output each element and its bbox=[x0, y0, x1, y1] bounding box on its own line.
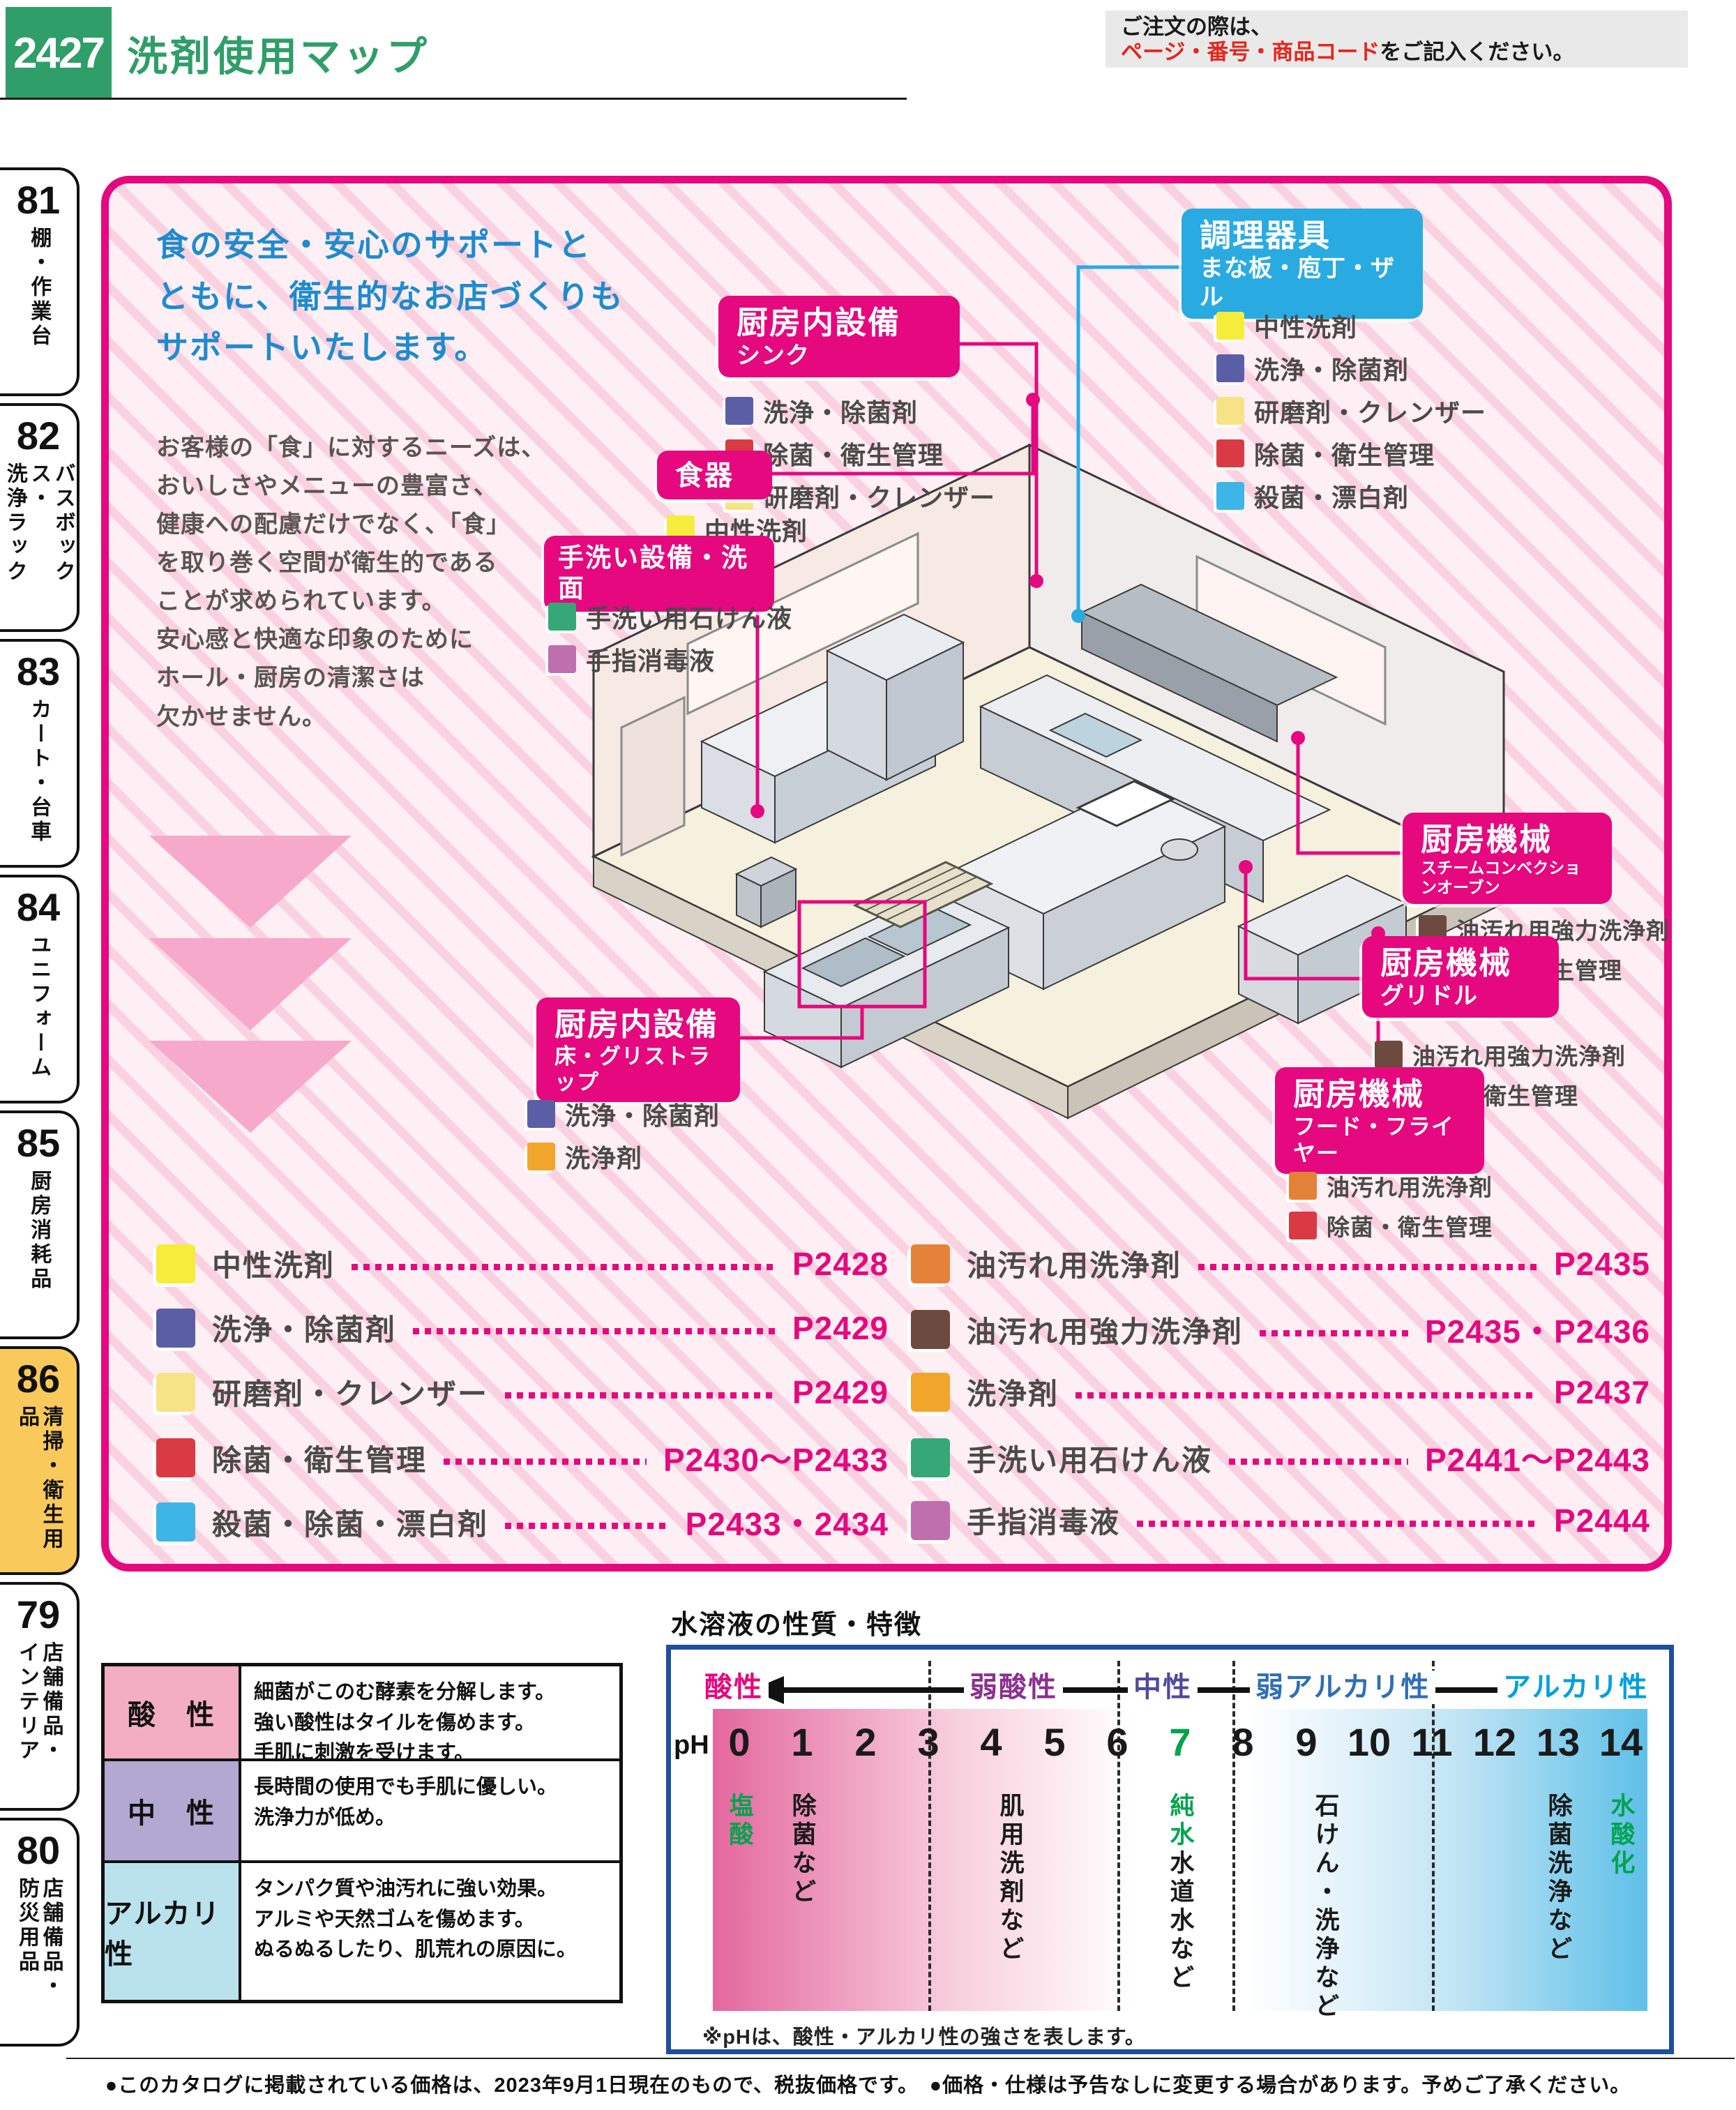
sidebar-tab-85[interactable]: 85厨房消耗品 bbox=[0, 1110, 80, 1339]
annotation-text: 石けん・洗浄など bbox=[1312, 1793, 1339, 2021]
page-number-badge: 2427 bbox=[6, 7, 112, 99]
chip-label: 手洗い用石けん液 bbox=[586, 598, 792, 635]
chip-label: 洗浄剤 bbox=[565, 1138, 642, 1175]
ph-axis-label: pH bbox=[674, 1731, 709, 1761]
ph-tick-3: 3 bbox=[904, 1719, 953, 1765]
legend-page-ref: P2429 bbox=[792, 1373, 889, 1411]
callout-tableware: 食器 bbox=[657, 451, 772, 499]
annotation-text: 塩酸 bbox=[726, 1793, 753, 1850]
footer-rule bbox=[66, 2058, 1735, 2059]
dotted-leader bbox=[352, 1264, 776, 1270]
footer-note: ●このカタログに掲載されている価格は、2023年9月1日現在のもので、税抜価格で… bbox=[0, 2069, 1736, 2098]
chip-label: 洗浄・除菌剤 bbox=[565, 1096, 720, 1132]
decorative-triangle bbox=[149, 938, 352, 1030]
color-chip bbox=[548, 603, 576, 631]
callout-subtitle: スチームコンベクションオーブン bbox=[1421, 859, 1594, 897]
tab-number: 84 bbox=[17, 884, 60, 930]
callout-cookware: 調理器具 まな板・庖丁・ザル bbox=[1182, 209, 1423, 319]
row-header: アルカリ性 bbox=[105, 1863, 241, 2000]
chip-label: 洗浄・除菌剤 bbox=[763, 393, 918, 429]
annotation-text: 純水 bbox=[1167, 1793, 1194, 1850]
ph-chart-title: 水溶液の性質・特徴 bbox=[671, 1603, 922, 1641]
ph-tick-8: 8 bbox=[1218, 1719, 1267, 1765]
chip-label: 研磨剤・クレンザー bbox=[1254, 393, 1486, 429]
ph-chart: 酸性 弱酸性 中性 弱アルカリ性 アルカリ性 pH 0 1 2 3 4 5 6 … bbox=[666, 1645, 1674, 2054]
legend-page-ref: P2435 bbox=[1554, 1245, 1650, 1283]
color-chip bbox=[725, 397, 753, 425]
scale-label-acid: 酸性 bbox=[699, 1671, 769, 1704]
legend-label: 研磨剤・クレンザー bbox=[212, 1371, 488, 1413]
order-note: ご注文の際は、 ページ・番号・商品コードをご記入ください。 bbox=[1105, 10, 1688, 68]
order-note-line1: ご注文の際は、 bbox=[1121, 15, 1688, 40]
callout-title: 厨房機械 bbox=[1293, 1076, 1466, 1113]
legend-swatch bbox=[156, 1309, 195, 1348]
tab-label: ユニフォーム bbox=[27, 934, 51, 1080]
ph-tick-2: 2 bbox=[841, 1719, 890, 1765]
legend-swatch bbox=[156, 1438, 195, 1477]
legend-swatch bbox=[156, 1502, 195, 1542]
chip-label: 研磨剤・クレンザー bbox=[763, 478, 995, 514]
table-row-acid: 酸 性 細菌がこのむ酵素を分解します。 強い酸性はタイルを傷めます。 手肌に刺激… bbox=[105, 1666, 619, 1761]
callout-hood-fryer-items: 油汚れ用洗浄剤 除菌・衛生管理 bbox=[1289, 1169, 1493, 1242]
ph-tick-6: 6 bbox=[1093, 1719, 1142, 1765]
color-chip bbox=[1216, 482, 1244, 510]
annotation-pure-water: 純水水道水など bbox=[1166, 1793, 1193, 1993]
ph-divider-dash bbox=[1117, 1661, 1120, 2011]
decorative-triangle bbox=[149, 836, 352, 928]
sidebar-tab-80[interactable]: 80店舗備品・ 防災用品 bbox=[0, 1818, 80, 2047]
callout-title: 手洗い設備・洗面 bbox=[558, 543, 760, 605]
legend-swatch bbox=[156, 1373, 195, 1412]
ph-tick-14: 14 bbox=[1597, 1719, 1645, 1765]
ph-footnote: ※pHは、酸性・アルカリ性の強さを表します。 bbox=[702, 2021, 1146, 2050]
chip-label: 油汚れ用強力洗浄剤 bbox=[1412, 1038, 1626, 1071]
legend-page-ref: P2433・2434 bbox=[686, 1499, 889, 1545]
callout-subtitle: 床・グリストラップ bbox=[554, 1043, 722, 1095]
chip-label: 除菌・衛生管理 bbox=[1254, 435, 1435, 472]
color-chip bbox=[548, 645, 576, 673]
legend-label: 洗浄剤 bbox=[967, 1371, 1059, 1413]
legend-row: 中性洗剤P2428 bbox=[156, 1242, 889, 1285]
color-chip bbox=[527, 1143, 555, 1170]
legend-row: 手洗い用石けん液P2441〜P2443 bbox=[911, 1435, 1650, 1481]
legend-label: 手洗い用石けん液 bbox=[967, 1437, 1212, 1479]
legend-page-ref: P2441〜P2443 bbox=[1425, 1435, 1650, 1481]
legend-page-ref: P2435・P2436 bbox=[1425, 1306, 1650, 1352]
catalog-page: 2427 洗剤使用マップ ご注文の際は、 ページ・番号・商品コードをご記入くださ… bbox=[0, 0, 1736, 2110]
legend-page-ref: P2437 bbox=[1554, 1373, 1650, 1411]
tab-number: 81 bbox=[17, 177, 60, 223]
tab-number: 85 bbox=[17, 1120, 60, 1166]
annotation-disinfect-clean: 除菌洗浄など bbox=[1544, 1793, 1571, 1964]
annotation-soap: 石けん・洗浄など bbox=[1311, 1793, 1338, 2021]
legend-row: 殺菌・除菌・漂白剤P2433・2434 bbox=[156, 1499, 889, 1545]
detergent-map-panel: 食の安全・安心のサポートと ともに、衛生的なお店づくりも サポートいたします。 … bbox=[101, 176, 1672, 1572]
tab-label: 厨房消耗品 bbox=[27, 1170, 51, 1292]
color-chip bbox=[1216, 312, 1244, 340]
ph-tick-5: 5 bbox=[1030, 1719, 1079, 1765]
order-note-tail: をご記入ください。 bbox=[1380, 40, 1574, 64]
sidebar-tab-81[interactable]: 81棚・作業台 bbox=[0, 167, 80, 396]
order-note-line2: ページ・番号・商品コードをご記入ください。 bbox=[1121, 40, 1688, 65]
tab-label: 店舗備品・ 防災用品 bbox=[15, 1877, 63, 1999]
callout-title: 厨房内設備 bbox=[737, 304, 942, 342]
annotation-text: 水道水など bbox=[1167, 1850, 1194, 1993]
callout-sink: 厨房内設備 シンク bbox=[718, 296, 960, 377]
annotation-text: 水酸化 bbox=[1608, 1793, 1635, 1878]
legend-label: 手指消毒液 bbox=[967, 1499, 1120, 1542]
dotted-leader bbox=[1198, 1264, 1537, 1270]
callout-cookware-items: 中性洗剤 洗浄・除菌剤 研磨剤・クレンザー 除菌・衛生管理 殺菌・漂白剤 bbox=[1216, 308, 1486, 514]
ph-property-table: 酸 性 細菌がこのむ酵素を分解します。 強い酸性はタイルを傷めます。 手肌に刺激… bbox=[101, 1663, 623, 2003]
intro-headline: 食の安全・安心のサポートと ともに、衛生的なお店づくりも サポートいたします。 bbox=[156, 220, 624, 374]
header-rule bbox=[0, 98, 907, 100]
scale-label-alkaline: アルカリ性 bbox=[1497, 1671, 1654, 1704]
sidebar-tab-79[interactable]: 79店舗備品・ インテリア bbox=[0, 1582, 80, 1811]
legend-label: 油汚れ用洗浄剤 bbox=[967, 1242, 1182, 1285]
legend-label: 洗浄・除菌剤 bbox=[212, 1306, 396, 1349]
legend-swatch bbox=[156, 1244, 195, 1283]
tab-number: 80 bbox=[17, 1828, 60, 1873]
table-row-alkaline: アルカリ性 タンパク質や油汚れに強い効果。 アルミや天然ゴムを傷めます。 ぬるぬ… bbox=[105, 1863, 619, 2000]
legend-swatch bbox=[911, 1310, 950, 1349]
table-row-neutral: 中 性 長時間の使用でも手肌に優しい。 洗浄力が低め。 bbox=[105, 1761, 619, 1863]
ph-tick-12: 12 bbox=[1470, 1719, 1519, 1765]
dotted-leader bbox=[1075, 1392, 1537, 1399]
sidebar-tab-82[interactable]: 82バスボックス・ 洗浄ラック bbox=[0, 403, 80, 632]
color-chip bbox=[1375, 1041, 1403, 1069]
intro-body: お客様の「食」に対するニーズは、 おいしさやメニューの豊富さ、 健康への配慮だけ… bbox=[156, 429, 545, 737]
decorative-triangle bbox=[149, 1041, 352, 1133]
dotted-leader bbox=[1229, 1459, 1408, 1465]
legend-row: 油汚れ用強力洗浄剤P2435・P2436 bbox=[911, 1306, 1650, 1352]
legend-label: 油汚れ用強力洗浄剤 bbox=[967, 1309, 1243, 1351]
legend-swatch bbox=[911, 1438, 950, 1477]
ph-tick-7: 7 bbox=[1156, 1719, 1205, 1765]
ph-tick-13: 13 bbox=[1534, 1719, 1583, 1765]
legend-swatch bbox=[911, 1501, 950, 1540]
legend-swatch bbox=[911, 1244, 950, 1283]
annotation-text: 除菌洗浄など bbox=[1545, 1793, 1572, 1964]
order-note-highlight: ページ・番号・商品コード bbox=[1121, 40, 1380, 64]
legend-page-ref: P2428 bbox=[792, 1245, 889, 1283]
legend-page-ref: P2430〜P2433 bbox=[663, 1435, 889, 1481]
color-chip bbox=[1289, 1172, 1317, 1200]
tab-number: 83 bbox=[17, 649, 60, 694]
chip-label: 殺菌・漂白剤 bbox=[1254, 478, 1409, 514]
dotted-leader bbox=[444, 1459, 647, 1465]
color-chip bbox=[1289, 1212, 1317, 1239]
dotted-leader bbox=[413, 1328, 776, 1334]
ph-tick-1: 1 bbox=[778, 1719, 827, 1765]
ph-tick-0: 0 bbox=[715, 1719, 764, 1765]
callout-subtitle: シンク bbox=[737, 342, 942, 370]
page-title: 洗剤使用マップ bbox=[127, 7, 430, 99]
tab-label: カート・台車 bbox=[27, 698, 51, 845]
callout-subtitle: フード・フライヤー bbox=[1293, 1113, 1466, 1167]
scale-label-weak-alkaline: 弱アルカリ性 bbox=[1250, 1671, 1435, 1704]
legend-page-ref: P2429 bbox=[792, 1309, 889, 1347]
row-description: タンパク質や油汚れに強い効果。 アルミや天然ゴムを傷めます。 ぬるぬるしたり、肌… bbox=[241, 1863, 619, 2000]
callout-title: 食器 bbox=[675, 459, 754, 492]
annotation-hcl: 塩酸 bbox=[725, 1793, 753, 1850]
annotation-disinfect: 除菌など bbox=[788, 1793, 815, 1907]
chip-label: 中性洗剤 bbox=[1254, 308, 1357, 344]
page-number: 2427 bbox=[13, 29, 104, 78]
legend-swatch bbox=[911, 1373, 950, 1412]
annotation-text: 除菌など bbox=[789, 1793, 816, 1907]
row-description: 長時間の使用でも手肌に優しい。 洗浄力が低め。 bbox=[241, 1761, 619, 1860]
color-chip bbox=[1216, 354, 1244, 382]
tab-label: 棚・作業台 bbox=[27, 227, 51, 349]
ph-tick-4: 4 bbox=[967, 1719, 1016, 1765]
legend-row: 洗浄剤P2437 bbox=[911, 1371, 1650, 1413]
legend-row: 除菌・衛生管理P2430〜P2433 bbox=[156, 1435, 889, 1481]
callout-subtitle: グリドル bbox=[1380, 982, 1541, 1011]
tab-number: 86 bbox=[17, 1356, 60, 1401]
annotation-skin-detergent: 肌用洗剤など bbox=[996, 1793, 1023, 1964]
scale-label-weak-acid: 弱酸性 bbox=[964, 1671, 1063, 1704]
ph-divider-dash bbox=[1232, 1661, 1235, 2011]
legend-row: 研磨剤・クレンザーP2429 bbox=[156, 1371, 889, 1413]
legend-label: 中性洗剤 bbox=[212, 1242, 335, 1285]
legend-label: 除菌・衛生管理 bbox=[212, 1437, 427, 1479]
tab-label: バスボックス・ 洗浄ラック bbox=[2, 462, 75, 629]
sidebar-tab-83[interactable]: 83カート・台車 bbox=[0, 639, 80, 868]
tab-number: 82 bbox=[17, 413, 60, 458]
sidebar-tab-84[interactable]: 84ユニフォーム bbox=[0, 875, 80, 1103]
callout-handwash-items: 手洗い用石けん液 手指消毒液 bbox=[548, 598, 792, 677]
callout-title: 厨房内設備 bbox=[554, 1006, 722, 1043]
callout-steam-oven: 厨房機械 スチームコンベクションオーブン bbox=[1403, 813, 1612, 904]
ph-tick-9: 9 bbox=[1282, 1719, 1331, 1765]
ph-tick-10: 10 bbox=[1345, 1719, 1394, 1765]
callout-hood-fryer: 厨房機械 フード・フライヤー bbox=[1275, 1067, 1484, 1174]
callout-griddle: 厨房機械 グリドル bbox=[1362, 936, 1559, 1018]
dotted-leader bbox=[1137, 1521, 1537, 1527]
sidebar-tab-86-active[interactable]: 86清掃・衛生用品 bbox=[0, 1346, 80, 1575]
dotted-leader bbox=[1260, 1330, 1408, 1336]
callout-title: 調理器具 bbox=[1200, 217, 1405, 255]
chip-label: 洗浄・除菌剤 bbox=[1254, 350, 1409, 386]
scale-label-neutral: 中性 bbox=[1128, 1671, 1198, 1704]
ph-tick-11: 11 bbox=[1407, 1719, 1456, 1765]
legend-row: 洗浄・除菌剤P2429 bbox=[156, 1306, 889, 1349]
chip-label: 手指消毒液 bbox=[586, 641, 715, 677]
chip-label: 除菌・衛生管理 bbox=[1327, 1209, 1493, 1242]
row-header: 酸 性 bbox=[105, 1666, 241, 1758]
row-description: 細菌がこのむ酵素を分解します。 強い酸性はタイルを傷めます。 手肌に刺激を受けま… bbox=[241, 1666, 619, 1758]
ph-divider-dash bbox=[1432, 1661, 1435, 2011]
annotation-hydroxide: 水酸化 bbox=[1607, 1793, 1634, 1878]
color-chip bbox=[527, 1100, 555, 1128]
color-chip bbox=[1216, 439, 1244, 467]
tab-number: 79 bbox=[17, 1592, 60, 1637]
callout-title: 厨房機械 bbox=[1421, 821, 1594, 859]
legend-label: 殺菌・除菌・漂白剤 bbox=[212, 1501, 488, 1544]
callout-floor-greasetrap: 厨房内設備 床・グリストラップ bbox=[536, 997, 740, 1102]
chip-label: 油汚れ用洗浄剤 bbox=[1327, 1169, 1493, 1203]
legend-row: 手指消毒液P2444 bbox=[911, 1499, 1650, 1542]
tab-label: 店舗備品・ インテリア bbox=[15, 1641, 63, 1763]
legend-page-ref: P2444 bbox=[1554, 1502, 1650, 1539]
legend-row: 油汚れ用洗浄剤P2435 bbox=[911, 1242, 1650, 1285]
callout-title: 厨房機械 bbox=[1380, 944, 1541, 982]
row-header: 中 性 bbox=[105, 1761, 241, 1860]
dotted-leader bbox=[505, 1392, 776, 1399]
callout-floor-items: 洗浄・除菌剤 洗浄剤 bbox=[527, 1096, 720, 1175]
dotted-leader bbox=[505, 1523, 669, 1529]
color-chip bbox=[1216, 397, 1244, 425]
callout-subtitle: まな板・庖丁・ザル bbox=[1200, 255, 1405, 312]
chip-label: 除菌・衛生管理 bbox=[763, 435, 944, 472]
annotation-text: 肌用洗剤など bbox=[997, 1793, 1024, 1964]
tab-label: 清掃・衛生用品 bbox=[15, 1406, 63, 1572]
ph-divider-dash bbox=[928, 1661, 931, 2011]
